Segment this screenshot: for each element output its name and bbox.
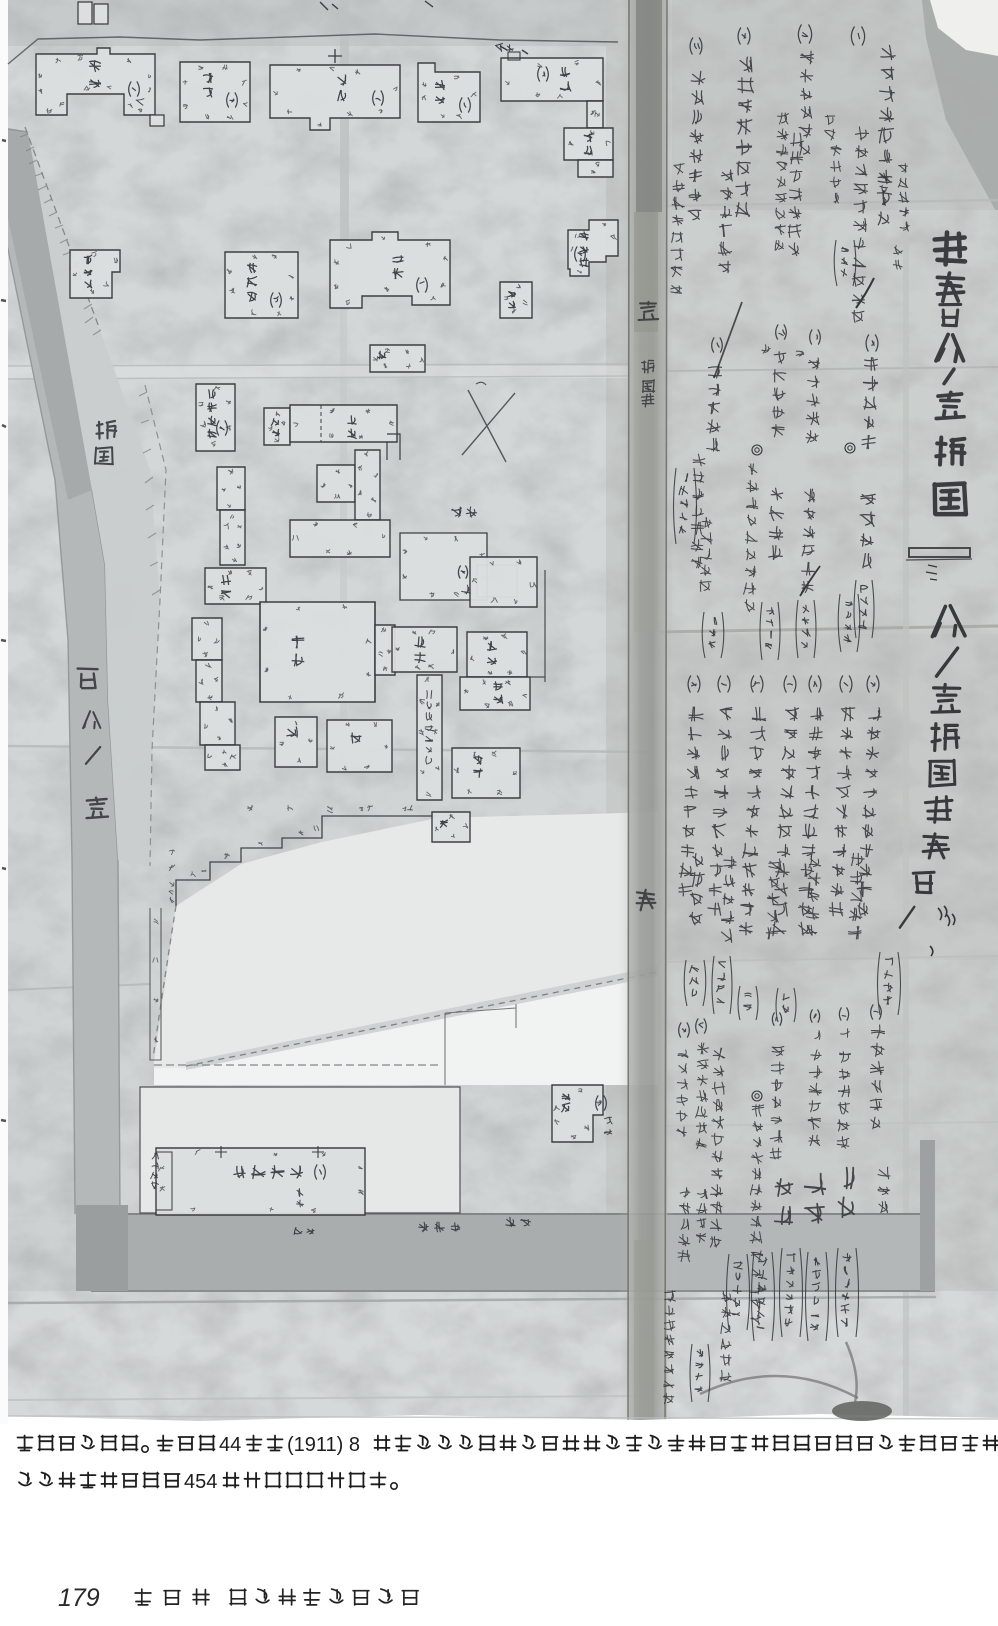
- svg-text:44: 44: [219, 1434, 241, 1456]
- svg-text:(1911) 8: (1911) 8: [287, 1434, 360, 1456]
- svg-text:454: 454: [184, 1471, 217, 1493]
- svg-text:179: 179: [58, 1584, 100, 1612]
